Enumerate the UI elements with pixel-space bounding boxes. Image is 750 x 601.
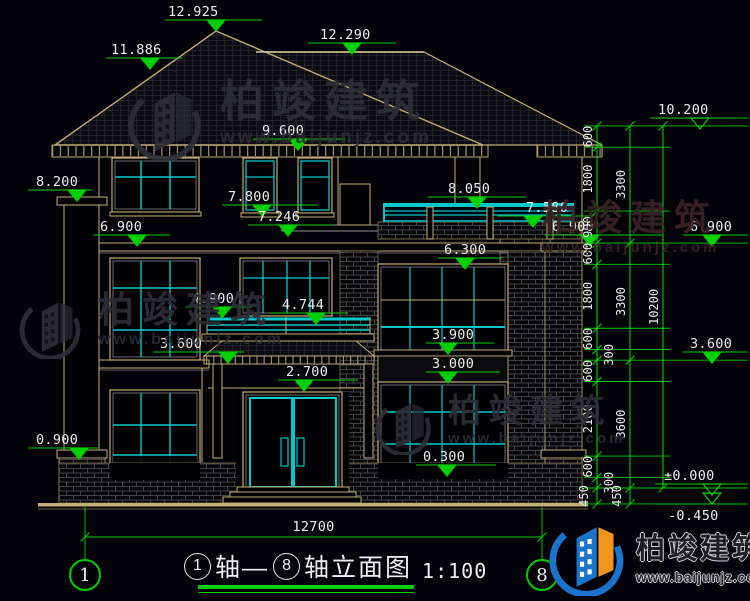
elevation-marker-label: 9.600: [262, 123, 304, 139]
elevation-marker-triangle: [207, 20, 225, 31]
elevation-marker-label: 3.600: [690, 336, 732, 352]
elevation-marker-label: 6.900: [100, 219, 142, 235]
window-3f-large: [112, 158, 199, 212]
eave-band: [52, 145, 602, 157]
elevation-marker-label: 7.800: [228, 189, 270, 205]
title-text: 1 轴— 8 轴立面图: [180, 548, 412, 584]
elevation-marker-label: 4.744: [282, 297, 324, 313]
entry-steps: [223, 487, 361, 503]
porch-column-left: [213, 364, 222, 458]
dimension-chain-label: 300: [602, 344, 616, 366]
elevation-marker-label: 7.246: [258, 209, 300, 225]
title-seg-a: 轴—: [215, 548, 269, 584]
elevation-marker-label: 10.200: [658, 102, 709, 118]
elevation-marker-triangle: [691, 118, 709, 129]
dimension-chain-label: 600: [581, 126, 595, 148]
porch-column-right: [364, 364, 373, 458]
overall-dim-label: 12700: [292, 519, 334, 535]
dimension-chain-label: 3300: [614, 170, 628, 199]
dimension-chain-label: 600: [581, 328, 595, 350]
elevation-marker-label: 12.925: [168, 4, 219, 20]
axis-circle-8-inline: 8: [273, 553, 300, 580]
elevation-marker-triangle: [213, 307, 231, 318]
elevation-marker-label: 3.000: [432, 356, 474, 372]
dimension-chain-label: 3300: [614, 287, 628, 316]
dimension-chain-label: 3600: [614, 410, 628, 439]
logo-building-icon: [548, 514, 632, 596]
title-underline: [198, 585, 414, 593]
brand-logo: 柏竣建筑 www.baijunjz.com: [548, 514, 750, 596]
axis-circle-1-inline: 1: [184, 553, 211, 580]
elevation-marker-label: 3.600: [160, 336, 202, 352]
dimension-chain-label: 10200: [647, 289, 661, 325]
elevation-marker-triangle: [141, 58, 159, 69]
elevation-marker-label: 12.290: [320, 27, 371, 43]
elevation-marker-label: ±0.000: [664, 468, 715, 484]
elevation-marker-label: 3.900: [432, 327, 474, 343]
drawing-scale: 1:100: [422, 559, 487, 583]
elevation-marker-label: 7.580: [526, 200, 568, 216]
ground-line: [38, 503, 588, 507]
logo-brand: 柏竣建筑: [636, 525, 750, 567]
dimension-chain-label: 600: [581, 243, 595, 265]
cad-elevation-screenshot: 12.92511.88612.2909.6008.2006.9007.8007.…: [0, 0, 750, 601]
dimension-chain-label: 900: [581, 216, 595, 238]
logo-site: www.baijunjz.com: [636, 570, 750, 585]
elevation-marker-triangle: [703, 352, 721, 363]
elevation-marker-label: 0.900: [36, 432, 78, 448]
dimension-chain-label: 450: [577, 485, 591, 507]
dimension-chain-label: 600: [581, 360, 595, 382]
elevation-marker-label: 6.900: [690, 219, 732, 235]
elevation-marker-label: 11.886: [111, 42, 162, 58]
left-pilaster: [57, 197, 107, 503]
drawing-title: 1 轴— 8 轴立面图 1:100: [180, 548, 487, 584]
elevation-marker-triangle: [295, 380, 313, 391]
elevation-marker-label: 4.900: [192, 291, 234, 307]
elevation-marker-triangle: [219, 352, 237, 363]
elevation-marker-label: 8.200: [36, 174, 78, 190]
parapet-block: [340, 184, 370, 225]
elevation-marker-label: 2.700: [286, 364, 328, 380]
title-seg-b: 轴立面图: [304, 548, 412, 584]
elevation-marker-label: 0.300: [423, 449, 465, 465]
entry-door: [243, 392, 342, 490]
elevation-marker-label: 8.050: [448, 181, 490, 197]
dimension-chain-label: 2100: [581, 404, 595, 433]
dimension-chain-label: 1800: [581, 282, 595, 311]
left-block-windows: [110, 258, 200, 480]
axis-bubble-label: 1: [79, 565, 90, 586]
dimension-chain-label: 450: [610, 485, 624, 507]
elevation-marker-label: 6.300: [444, 242, 486, 258]
house-elevation: [38, 31, 602, 509]
elevation-drawing: 12.92511.88612.2909.6008.2006.9007.8007.…: [0, 0, 750, 601]
dimension-chain-label: 1800: [581, 165, 595, 194]
elevation-marker-triangle: [703, 235, 721, 246]
dimension-chain-label: 600: [581, 456, 595, 478]
axis-bubble-label: 8: [536, 565, 547, 586]
